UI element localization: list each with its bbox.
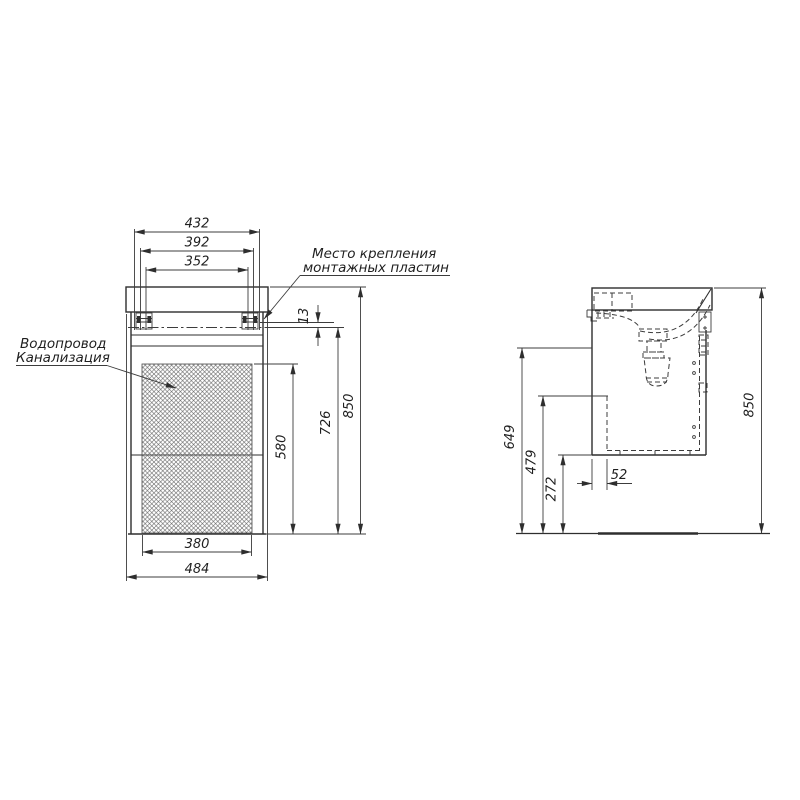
dim-52: 52	[611, 468, 628, 483]
wall-bracket	[699, 312, 711, 355]
plumbing-zone-lower	[142, 455, 252, 533]
dim-392: 392	[185, 236, 210, 251]
plumbing-zone-upper	[142, 364, 252, 455]
mounting-leader-line	[264, 276, 300, 320]
dim-649: 649	[503, 425, 518, 450]
front-countertop	[126, 287, 268, 312]
technical-drawing-page: 432 392 352 13 580 726 850	[0, 0, 800, 800]
dim-272: 272	[545, 477, 560, 502]
dim-850-side: 850	[743, 393, 758, 418]
label-plumbing-line2: Канализация	[16, 350, 110, 366]
mounting-plates-callout: Место крепления монтажных пластин	[264, 246, 450, 319]
front-view: 432 392 352 13 580 726 850	[16, 217, 450, 582]
dim-52-group: 52	[577, 459, 632, 490]
dim-380: 380	[185, 537, 210, 552]
vanity-drawing-svg: 432 392 352 13 580 726 850	[0, 0, 800, 800]
dim-479: 479	[525, 450, 540, 475]
side-countertop	[592, 288, 712, 310]
mounting-plate-right	[242, 313, 258, 329]
drawer-hidden-lines	[592, 396, 700, 455]
side-dimensions: 649 479 272 52 850	[503, 288, 766, 534]
plumbing-callout: Водопровод Канализация	[16, 336, 176, 388]
basin-hidden-profile	[596, 299, 710, 341]
dim-580: 580	[275, 435, 290, 460]
dim-352: 352	[185, 255, 210, 270]
front-top-dimensions: 432 392 352	[135, 217, 260, 271]
dim-432: 432	[185, 217, 210, 232]
label-mounting-line2: монтажных пластин	[303, 260, 449, 276]
dim-13-group: 13	[260, 305, 334, 346]
dim-850-front: 850	[342, 394, 357, 419]
siphon-hidden	[643, 341, 670, 386]
dim-726: 726	[319, 411, 334, 436]
mounting-plate-left	[136, 313, 152, 329]
dim-13: 13	[297, 308, 312, 325]
dim-484: 484	[185, 562, 210, 577]
back-panel-hidden	[693, 336, 707, 450]
side-view: 649 479 272 52 850	[503, 288, 770, 534]
